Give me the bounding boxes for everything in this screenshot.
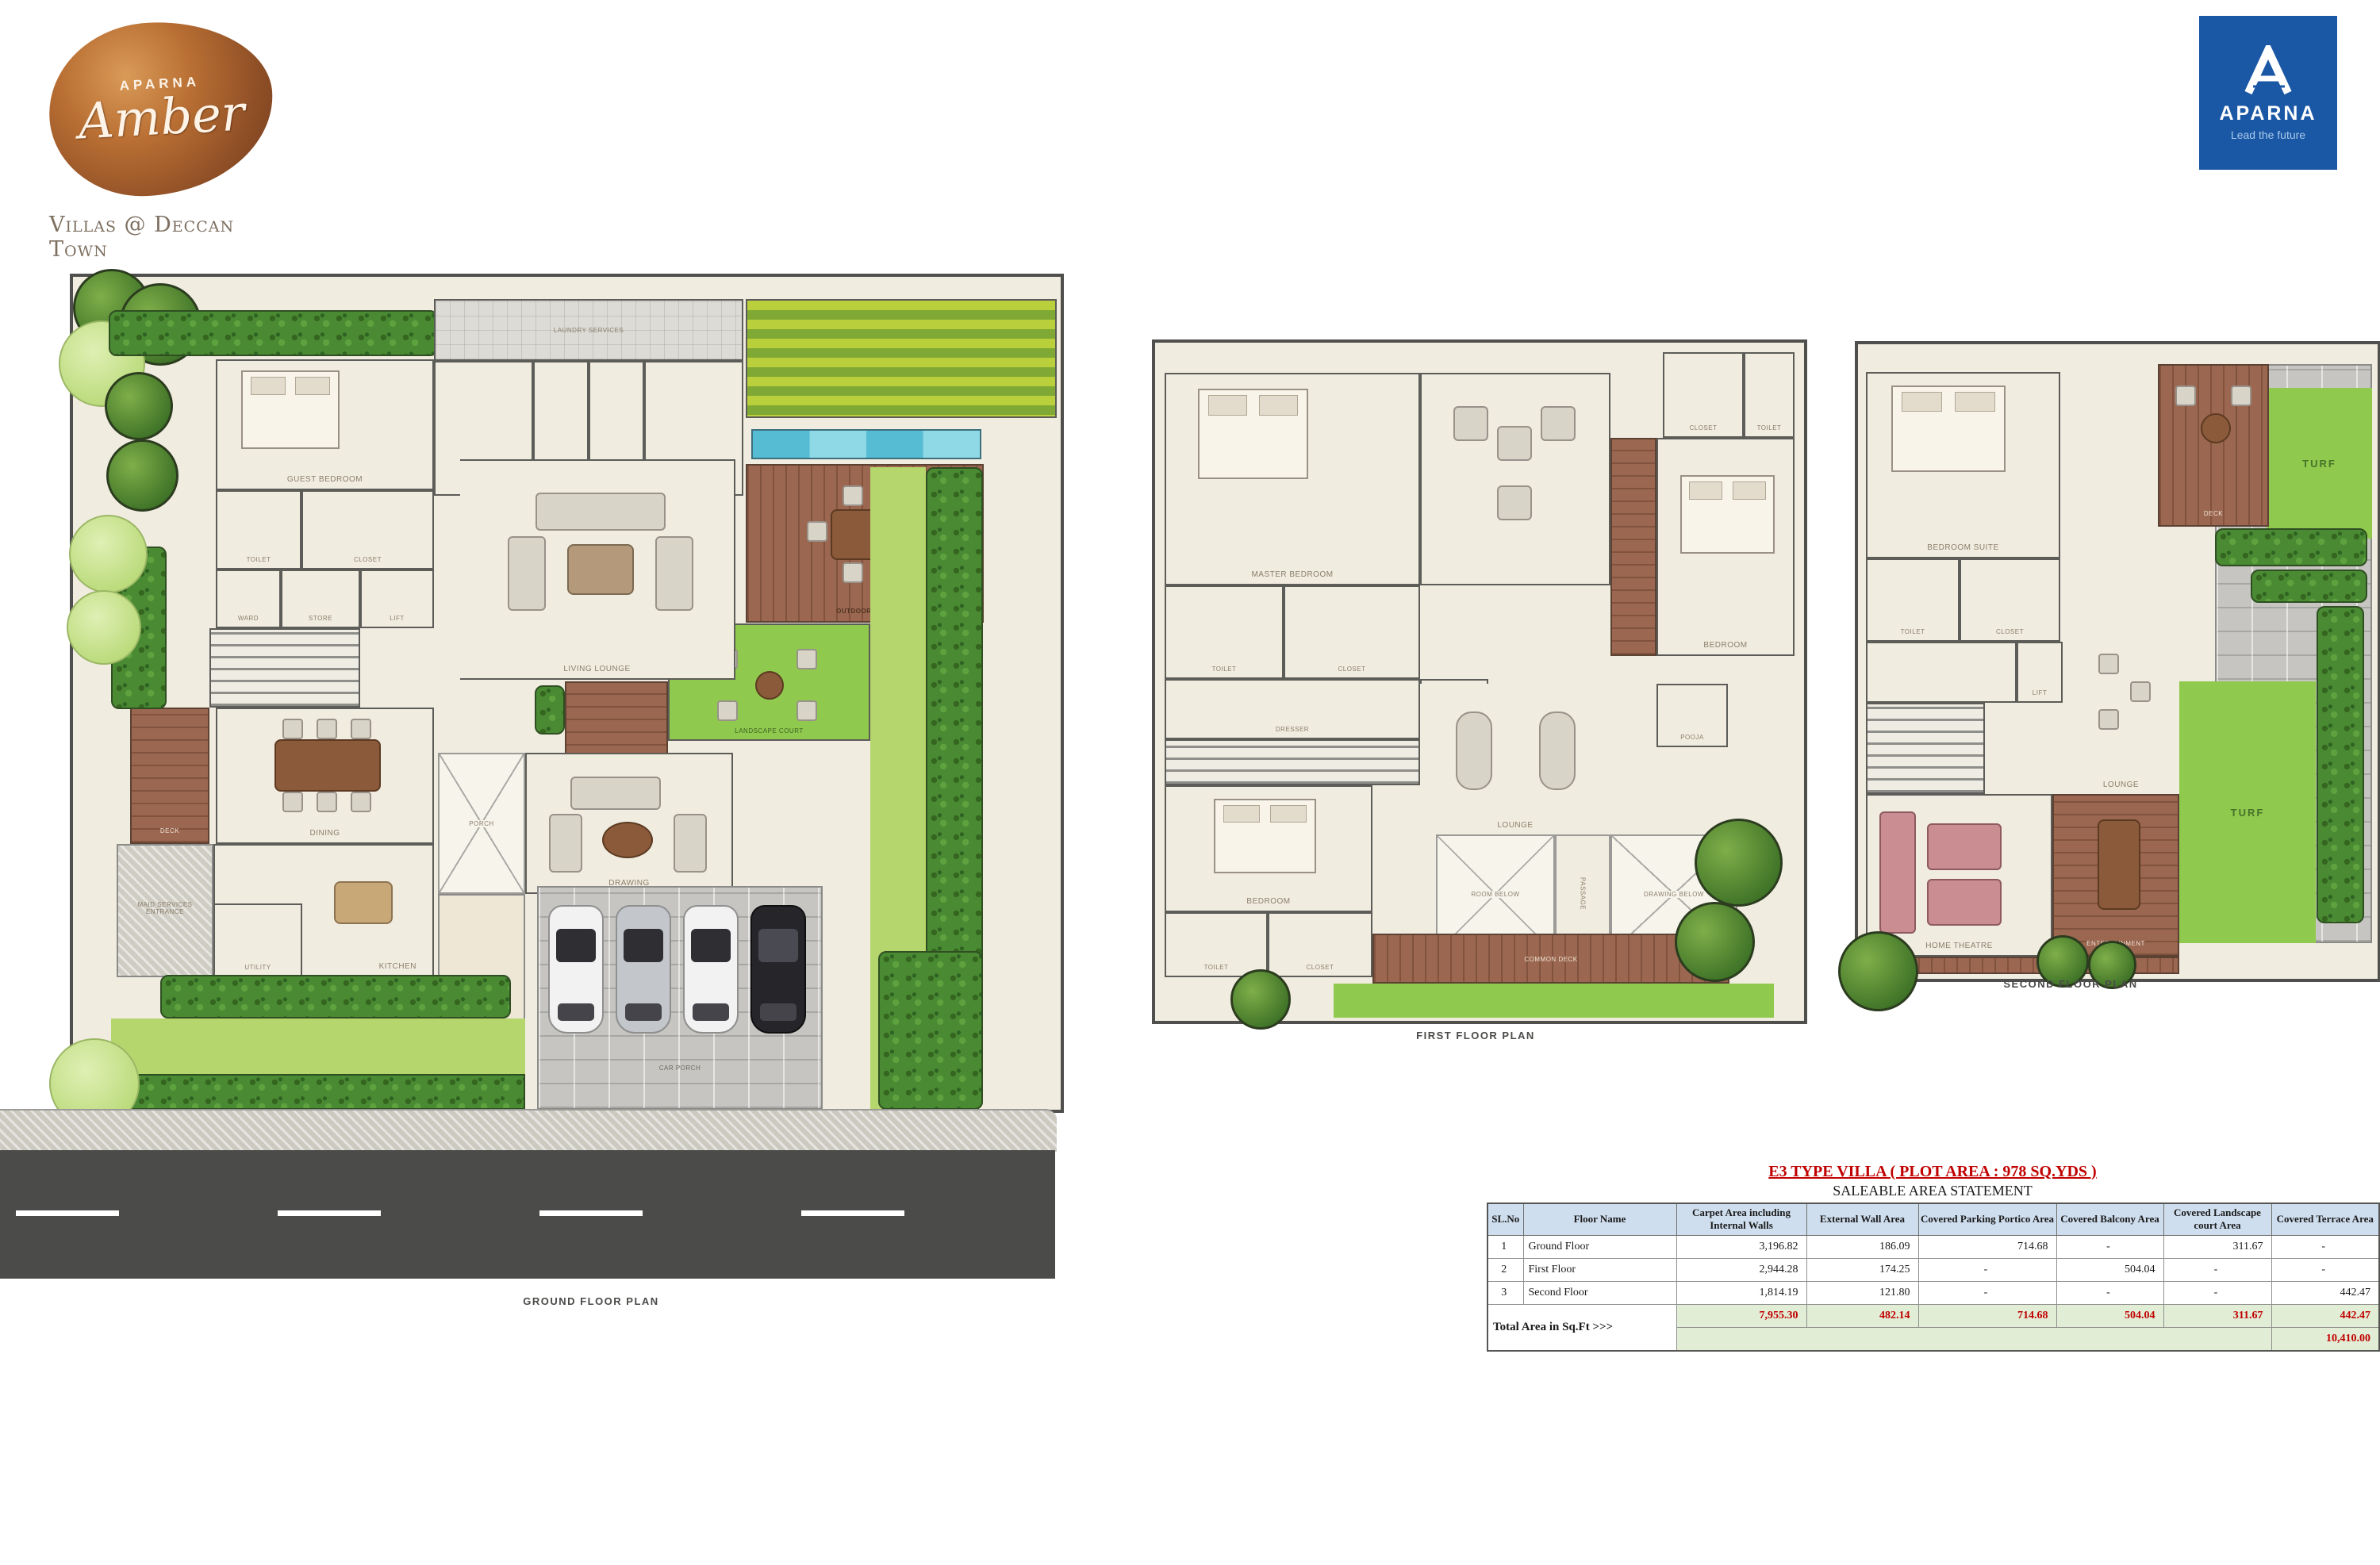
cell-value: -: [2163, 1258, 2271, 1281]
room-label: TOILET: [1166, 666, 1282, 677]
room-label: LIVING LOUNGE: [460, 665, 734, 678]
chair-icon: [282, 719, 303, 739]
first-floor-plan: MASTER BEDROOM CLOSET TOILET BEDROOM TOI…: [1152, 339, 1807, 1024]
amber-name-text: Amber: [77, 90, 245, 146]
staircase: [1866, 703, 1985, 794]
table-row: 3 Second Floor 1,814.19 121.80 - - - 442…: [1487, 1281, 2379, 1304]
table-header-row: SL.No Floor Name Carpet Area including I…: [1487, 1203, 2379, 1235]
lounge: LOUNGE: [2063, 606, 2179, 794]
lift: LIFT: [360, 570, 434, 628]
sofa-icon: [1927, 879, 2002, 926]
cell-slno: 1: [1487, 1235, 1523, 1258]
staircase: [1165, 739, 1420, 785]
car-porch: CAR PORCH: [537, 886, 823, 1110]
bed-icon: [1891, 385, 2006, 472]
bed-icon: [1198, 389, 1308, 479]
chair-icon: [807, 521, 827, 542]
brochure-page: APARNA Amber Villas @ Deccan Town APARNA…: [0, 0, 2380, 1565]
col-header: Covered Balcony Area: [2056, 1203, 2163, 1235]
tree-icon: [106, 439, 178, 512]
table-row: 1 Ground Floor 3,196.82 186.09 714.68 - …: [1487, 1235, 2379, 1258]
col-header: Covered Landscape court Area: [2163, 1203, 2271, 1235]
chair-icon: [282, 792, 303, 812]
chair-icon: [2098, 654, 2119, 674]
cell-value: -: [2056, 1281, 2163, 1304]
table-icon: [567, 544, 634, 595]
kitchen-garden-zone: [746, 299, 1057, 418]
total-value: 311.67: [2163, 1304, 2271, 1327]
tree-icon: [1695, 819, 1783, 907]
sofa-icon: [1456, 712, 1492, 790]
entertainment-room: ENTERTAINMENT: [2052, 794, 2179, 957]
car-icon: [750, 905, 806, 1034]
hedge-front-upper: [160, 975, 511, 1018]
room-label: DRESSER: [1166, 726, 1418, 738]
room-label: UTILITY: [215, 964, 301, 976]
cell-value: 174.25: [1806, 1258, 1918, 1281]
closet-mid-left: CLOSET: [1284, 585, 1420, 679]
grand-total-spacer: [1676, 1327, 2271, 1351]
chair-icon: [2130, 681, 2151, 702]
cell-floor: Second Floor: [1523, 1281, 1676, 1304]
room-label: CLOSET: [1664, 424, 1742, 436]
table-icon: [602, 822, 653, 858]
drawing-room: DRAWING: [525, 753, 733, 894]
bed-icon: [1680, 475, 1775, 554]
cell-slno: 2: [1487, 1258, 1523, 1281]
balcony-turf-strip: [1334, 984, 1774, 1018]
cell-value: 186.09: [1806, 1235, 1918, 1258]
hedge-terrace-1: [2215, 528, 2367, 566]
front-lawn: [111, 1018, 525, 1076]
room-label: BEDROOM: [1658, 641, 1793, 654]
sidewalk: [0, 1109, 1057, 1152]
first-plan-caption: FIRST FLOOR PLAN: [1349, 1030, 1603, 1041]
tree-icon: [1230, 969, 1291, 1030]
col-header: Floor Name: [1523, 1203, 1676, 1235]
aparna-tagline-text: Lead the future: [2231, 128, 2305, 141]
cell-value: 121.80: [1806, 1281, 1918, 1304]
tree-icon: [67, 590, 141, 665]
grand-total-value: 10,410.00: [2271, 1327, 2379, 1351]
room-label: LOUNGE: [1420, 821, 1610, 834]
store-room: STORE: [281, 570, 360, 628]
chair-icon: [2175, 385, 2196, 406]
room-label: TOILET: [1745, 424, 1793, 436]
total-value: 7,955.30: [1676, 1304, 1806, 1327]
utility-room: UTILITY: [213, 903, 302, 977]
kitchen-island-icon: [334, 881, 393, 924]
sofa-icon: [1879, 811, 1916, 934]
room-label: TOILET: [1868, 628, 1958, 640]
dining-room: DINING: [216, 708, 434, 844]
hedge-right-lower: [878, 951, 983, 1110]
cell-value: 311.67: [2163, 1235, 2271, 1258]
toilet-top-right: TOILET: [1744, 352, 1795, 438]
bedroom-suite: BEDROOM SUITE: [1866, 372, 2060, 558]
car-icon: [683, 905, 739, 1034]
hedge-terrace-col: [2317, 606, 2364, 923]
room-label: TURF: [2179, 807, 2316, 819]
room-label: LOUNGE: [2063, 781, 2179, 794]
room-label: DINING: [217, 829, 432, 842]
bedroom-3: BEDROOM: [1165, 785, 1372, 912]
ground-plan-caption: GROUND FLOOR PLAN: [432, 1295, 750, 1307]
swimming-pool: [751, 429, 981, 459]
room-label: DECK: [2159, 510, 2267, 522]
room-label: TOILET: [217, 556, 300, 568]
guest-toilet: TOILET: [216, 490, 301, 570]
tree-icon: [69, 515, 148, 593]
closet-top-right: CLOSET: [1663, 352, 1744, 438]
hedge-planter: [535, 685, 565, 735]
room-label: CLOSET: [1961, 628, 2059, 640]
room-label: POOJA: [1658, 734, 1726, 746]
table-icon: [755, 671, 784, 700]
hedge-terrace-2: [2251, 570, 2367, 603]
total-value: 442.47: [2271, 1304, 2379, 1327]
toilet-bottom-left: TOILET: [1165, 912, 1268, 977]
chair-icon: [2231, 385, 2251, 406]
cell-value: 714.68: [1918, 1235, 2056, 1258]
area-table: SL.No Floor Name Carpet Area including I…: [1487, 1203, 2380, 1352]
car-icon: [616, 905, 671, 1034]
tree-icon: [1675, 902, 1755, 982]
chair-icon: [317, 792, 337, 812]
total-value: 504.04: [2056, 1304, 2163, 1327]
room-label: LIFT: [2018, 689, 2061, 701]
room-label: LANDSCAPE COURT: [670, 727, 869, 739]
room-label: STORE: [282, 615, 359, 627]
room-label: COMMON DECK: [1374, 956, 1728, 968]
cell-value: -: [2271, 1235, 2379, 1258]
roof-deck: DECK: [2158, 364, 2269, 527]
project-tagline: Villas @ Deccan Town: [49, 213, 287, 262]
room-label: WARD: [217, 615, 279, 627]
road-centerline: [16, 1210, 1031, 1216]
cell-floor: Ground Floor: [1523, 1235, 1676, 1258]
cell-value: 504.04: [2056, 1258, 2163, 1281]
cell-value: -: [1918, 1281, 2056, 1304]
table-title: E3 TYPE VILLA ( PLOT AREA : 978 SQ.YDS ): [1487, 1163, 2378, 1181]
room-label: PORCH: [466, 820, 496, 827]
bed-icon: [1214, 799, 1316, 873]
aparna-company-logo: APARNA Lead the future: [2199, 16, 2337, 170]
bedroom-2: BEDROOM: [1656, 438, 1795, 656]
closet: CLOSET: [1960, 558, 2060, 642]
cell-value: 3,196.82: [1676, 1235, 1806, 1258]
sofa-icon: [1453, 406, 1488, 441]
dining-table-icon: [274, 739, 381, 792]
room-label: TURF: [2267, 458, 2372, 470]
room-label: LAUNDRY SERVICES: [436, 327, 742, 334]
balcony-deck: [1610, 438, 1656, 656]
room-label: CLOSET: [303, 556, 432, 568]
wash-area: [1866, 642, 2017, 703]
room-label: DRAWING BELOW: [1641, 891, 1706, 898]
sofa-icon: [1541, 406, 1576, 441]
sofa-icon: [535, 493, 666, 531]
col-header: External Wall Area: [1806, 1203, 1918, 1235]
wardrobe: WARD: [216, 570, 281, 628]
pooja-room: POOJA: [1656, 684, 1728, 747]
table-row: 2 First Floor 2,944.28 174.25 - 504.04 -…: [1487, 1258, 2379, 1281]
laundry-room: LAUNDRY SERVICES: [434, 299, 743, 361]
saleable-area-statement: E3 TYPE VILLA ( PLOT AREA : 978 SQ.YDS )…: [1487, 1163, 2378, 1352]
sofa-icon: [1927, 823, 2002, 870]
room-label: CAR PORCH: [539, 1064, 821, 1076]
cell-value: 1,814.19: [1676, 1281, 1806, 1304]
total-label: Total Area in Sq.Ft >>>: [1487, 1304, 1676, 1351]
closet-bottom-left: CLOSET: [1268, 912, 1372, 977]
cell-value: 2,944.28: [1676, 1258, 1806, 1281]
cell-value: -: [2271, 1258, 2379, 1281]
room-label: DECK: [132, 827, 208, 839]
total-value: 714.68: [1918, 1304, 2056, 1327]
turf-top: TURF: [2267, 388, 2372, 539]
sofa-icon: [655, 536, 693, 611]
col-header: SL.No: [1487, 1203, 1523, 1235]
amber-project-logo: APARNA Amber: [44, 17, 277, 201]
room-label: ROOM BELOW: [1468, 891, 1522, 898]
chair-icon: [317, 719, 337, 739]
cell-value: -: [2163, 1281, 2271, 1304]
sofa-icon: [674, 814, 707, 873]
turf-bottom: TURF: [2179, 681, 2316, 943]
table-icon: [2098, 819, 2140, 910]
room-label: BEDROOM: [1166, 897, 1371, 911]
cell-slno: 3: [1487, 1281, 1523, 1304]
sofa-icon: [570, 777, 661, 810]
room-label: GUEST BEDROOM: [217, 475, 432, 489]
sofa-icon: [549, 814, 582, 873]
chair-icon: [797, 700, 817, 721]
col-header: Covered Parking Portico Area: [1918, 1203, 2056, 1235]
room-label: PASSAGE: [1580, 877, 1587, 910]
toilet: TOILET: [1866, 558, 1960, 642]
dresser-room: DRESSER: [1165, 679, 1420, 739]
aparna-monogram-icon: [2242, 45, 2294, 98]
aparna-name-text: APARNA: [2219, 102, 2317, 125]
total-value: 482.14: [1806, 1304, 1918, 1327]
hall-open: [1457, 585, 1610, 684]
bed-icon: [241, 370, 340, 449]
second-floor-plan: TURF DECK BEDROOM SUITE TURF TOILET CLOS…: [1855, 341, 2380, 982]
table-icon: [2201, 413, 2231, 443]
room-label: CLOSET: [1269, 964, 1371, 976]
sofa-icon: [1497, 426, 1532, 461]
tree-icon: [105, 372, 173, 440]
table-subtitle: SALEABLE AREA STATEMENT: [1487, 1183, 2378, 1199]
col-header: Carpet Area including Internal Walls: [1676, 1203, 1806, 1235]
ground-floor-plan: LAUNDRY SERVICES MAID - 01 TOILET MAID -…: [70, 274, 1064, 1113]
sofa-icon: [1497, 485, 1532, 520]
toilet-mid-left: TOILET: [1165, 585, 1284, 679]
side-deck: DECK: [130, 708, 209, 844]
cell-value: -: [1918, 1258, 2056, 1281]
tree-icon: [1838, 931, 1918, 1011]
room-label: BEDROOM SUITE: [1868, 543, 2059, 557]
cell-value: 442.47: [2271, 1281, 2379, 1304]
chair-icon: [843, 485, 863, 506]
lounge: LOUNGE: [1420, 684, 1610, 834]
car-icon: [548, 905, 604, 1034]
sitting-area: [1420, 373, 1610, 585]
maid-entrance-path: MAID SERVICES ENTRANCE: [117, 844, 213, 977]
room-label: LIFT: [362, 615, 432, 627]
cell-value: -: [2056, 1235, 2163, 1258]
cell-floor: First Floor: [1523, 1258, 1676, 1281]
porch: PORCH: [438, 753, 525, 894]
hedge-front-lower: [111, 1074, 525, 1110]
col-header: Covered Terrace Area: [2271, 1203, 2379, 1235]
chair-icon: [717, 700, 738, 721]
guest-closet: CLOSET: [301, 490, 434, 570]
table-totals-row: Total Area in Sq.Ft >>> 7,955.30 482.14 …: [1487, 1304, 2379, 1327]
guest-bedroom: GUEST BEDROOM: [216, 359, 434, 490]
master-bedroom: MASTER BEDROOM: [1165, 373, 1420, 585]
staircase: [209, 628, 360, 708]
hedge-top: [109, 310, 438, 356]
room-label: MAID SERVICES ENTRANCE: [118, 901, 212, 915]
home-theatre: HOME THEATRE: [1866, 794, 2052, 957]
sofa-icon: [1539, 712, 1576, 790]
chair-icon: [843, 562, 863, 583]
chair-icon: [797, 649, 817, 669]
lift: LIFT: [2017, 642, 2063, 703]
living-lounge: LIVING LOUNGE: [460, 459, 735, 680]
sofa-icon: [508, 536, 546, 611]
second-plan-caption: SECOND FLOOR PLAN: [1944, 978, 2198, 990]
chair-icon: [351, 719, 371, 739]
room-label: MASTER BEDROOM: [1166, 570, 1418, 584]
chair-icon: [2098, 709, 2119, 730]
chair-icon: [351, 792, 371, 812]
road: [0, 1150, 1055, 1279]
room-label: CLOSET: [1285, 666, 1418, 677]
